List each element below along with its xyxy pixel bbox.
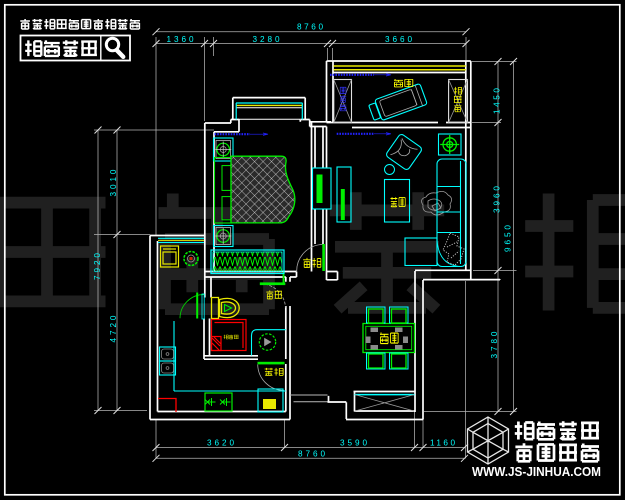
svg-text:1160: 1160 xyxy=(430,439,455,448)
svg-text:WWW.JS-JINHUA.COM: WWW.JS-JINHUA.COM xyxy=(472,465,601,479)
